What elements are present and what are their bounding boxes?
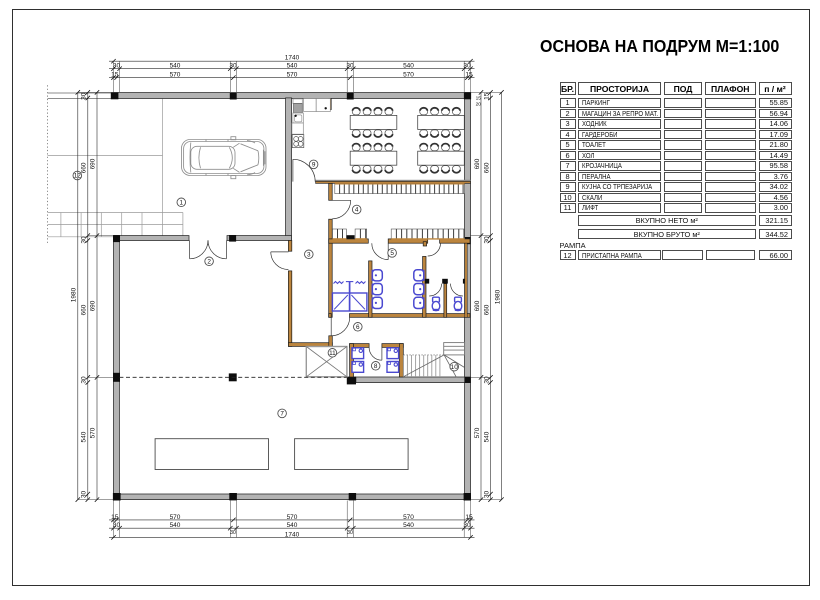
- svg-text:570: 570: [287, 71, 298, 78]
- svg-text:30: 30: [230, 530, 236, 536]
- svg-text:30: 30: [81, 491, 88, 499]
- svg-text:9: 9: [312, 162, 316, 169]
- svg-text:30: 30: [81, 236, 88, 244]
- svg-text:1: 1: [180, 200, 184, 207]
- svg-text:660: 660: [81, 162, 88, 173]
- svg-text:690: 690: [90, 158, 97, 169]
- svg-text:540: 540: [403, 63, 414, 70]
- svg-text:570: 570: [287, 514, 298, 521]
- svg-text:30: 30: [347, 530, 353, 536]
- svg-text:6: 6: [356, 324, 360, 331]
- svg-text:570: 570: [474, 427, 481, 438]
- svg-text:30: 30: [113, 522, 121, 529]
- svg-text:8: 8: [374, 363, 378, 370]
- svg-text:20: 20: [476, 102, 482, 108]
- svg-text:570: 570: [170, 71, 181, 78]
- svg-text:7: 7: [280, 411, 284, 418]
- svg-text:540: 540: [287, 63, 298, 70]
- svg-text:10: 10: [451, 364, 459, 371]
- svg-text:570: 570: [403, 514, 414, 521]
- svg-text:30: 30: [463, 63, 471, 70]
- svg-text:690: 690: [474, 158, 481, 169]
- svg-text:11: 11: [329, 350, 336, 357]
- svg-text:30: 30: [484, 236, 491, 244]
- svg-text:3: 3: [307, 252, 311, 259]
- svg-text:15: 15: [476, 96, 482, 102]
- svg-text:30: 30: [113, 63, 121, 70]
- svg-text:30: 30: [463, 522, 471, 529]
- svg-text:660: 660: [81, 304, 88, 315]
- svg-text:15: 15: [465, 514, 473, 521]
- svg-text:1740: 1740: [285, 55, 300, 62]
- svg-text:30: 30: [346, 63, 354, 70]
- svg-text:15: 15: [111, 514, 119, 521]
- svg-text:540: 540: [484, 431, 491, 442]
- svg-text:15: 15: [111, 71, 119, 78]
- svg-text:4: 4: [355, 207, 359, 214]
- svg-text:2: 2: [207, 259, 211, 266]
- svg-text:540: 540: [81, 431, 88, 442]
- svg-text:15: 15: [465, 71, 473, 78]
- svg-text:15: 15: [484, 92, 491, 100]
- svg-text:660: 660: [484, 304, 491, 315]
- svg-text:570: 570: [90, 427, 97, 438]
- svg-text:570: 570: [170, 514, 181, 521]
- svg-text:30: 30: [81, 92, 88, 100]
- svg-text:570: 570: [403, 71, 414, 78]
- svg-text:30: 30: [229, 63, 237, 70]
- svg-text:30: 30: [484, 491, 491, 499]
- svg-text:30: 30: [484, 376, 491, 384]
- svg-text:30: 30: [81, 376, 88, 384]
- svg-text:5: 5: [390, 250, 394, 257]
- svg-text:540: 540: [287, 522, 298, 529]
- svg-text:540: 540: [170, 63, 181, 70]
- svg-text:540: 540: [170, 522, 181, 529]
- svg-text:660: 660: [484, 162, 491, 173]
- svg-text:540: 540: [403, 522, 414, 529]
- svg-text:1980: 1980: [71, 287, 78, 302]
- svg-text:1980: 1980: [494, 289, 501, 304]
- svg-text:1740: 1740: [285, 531, 300, 538]
- svg-text:690: 690: [90, 300, 97, 311]
- svg-text:690: 690: [474, 300, 481, 311]
